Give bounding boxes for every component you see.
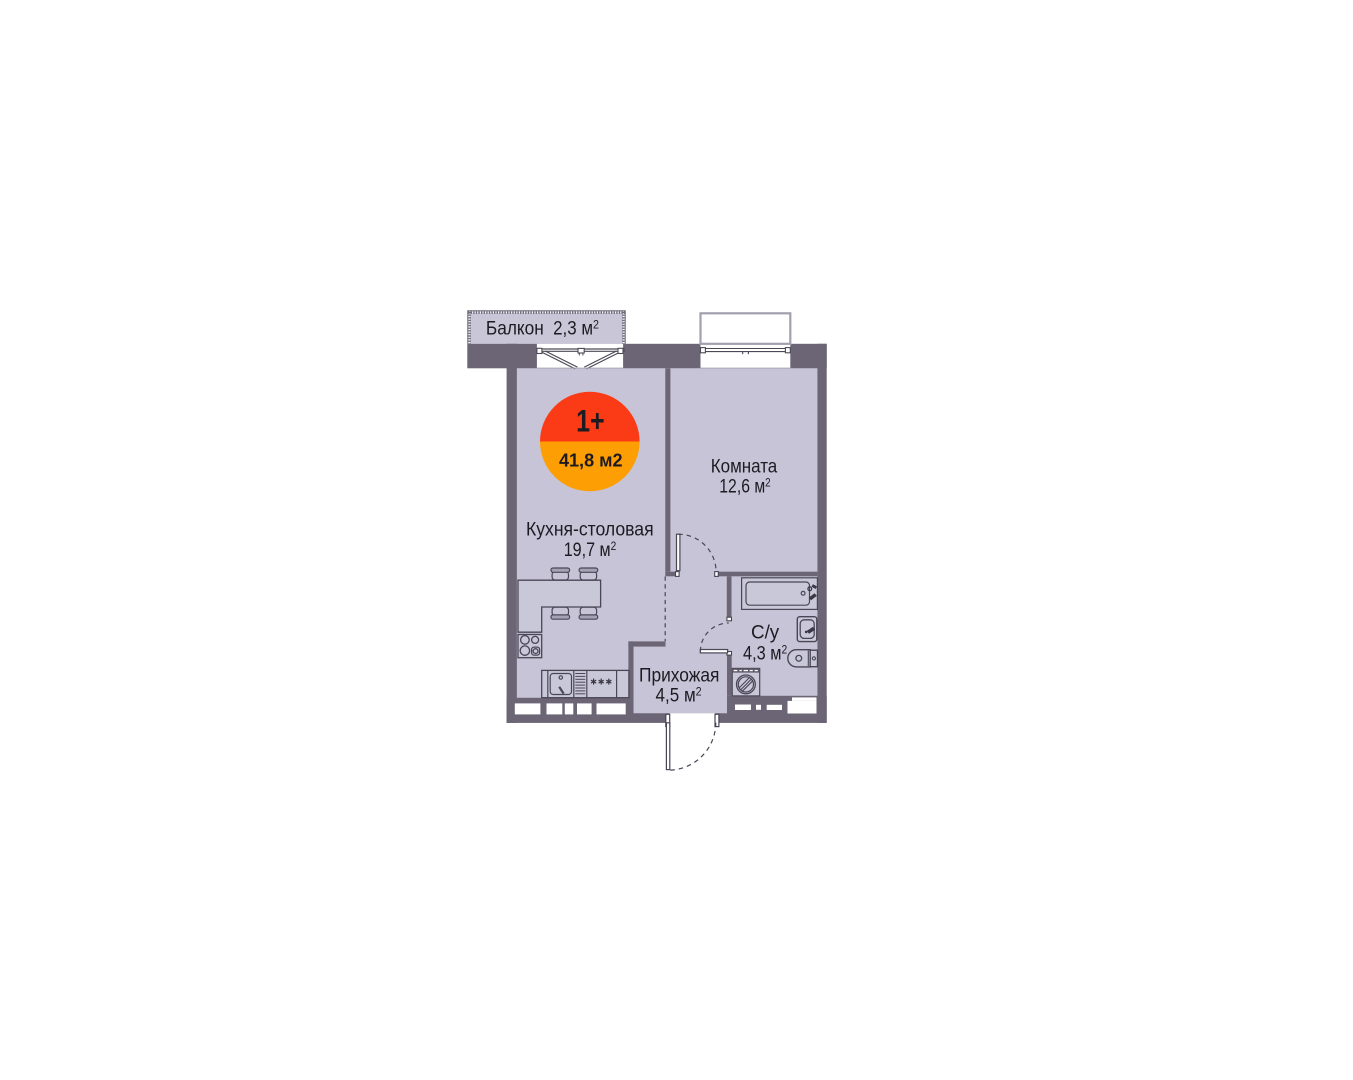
svg-text:Кухня-столовая: Кухня-столовая <box>526 520 654 541</box>
svg-text:С/у: С/у <box>751 622 780 643</box>
svg-text:Прихожая: Прихожая <box>639 665 719 686</box>
svg-text:2,3 м2: 2,3 м2 <box>553 318 599 340</box>
svg-text:4,3 м2: 4,3 м2 <box>743 643 787 665</box>
svg-text:Комната: Комната <box>711 457 778 478</box>
svg-text:Балкон: Балкон <box>486 318 544 339</box>
svg-text:19,7 м2: 19,7 м2 <box>564 539 617 561</box>
svg-text:4,5 м2: 4,5 м2 <box>656 685 702 707</box>
svg-text:1+: 1+ <box>576 403 605 438</box>
svg-text:41,8 м2: 41,8 м2 <box>559 449 623 470</box>
svg-text:12,6 м2: 12,6 м2 <box>719 476 771 498</box>
